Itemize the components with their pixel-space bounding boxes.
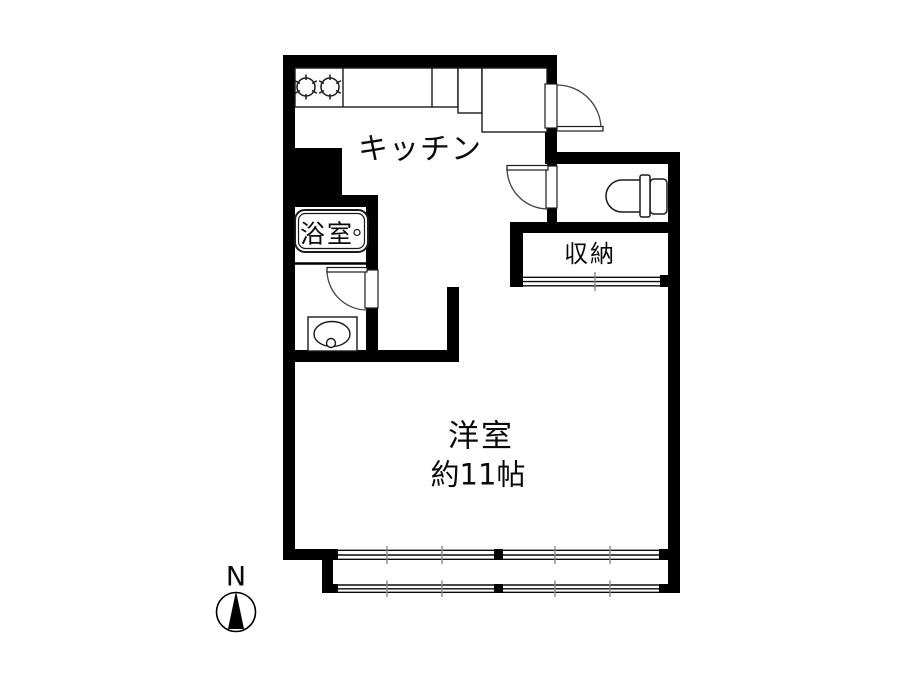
bathtub-drain-icon [354, 230, 360, 236]
wall-top [283, 55, 557, 68]
wall-washroom-bottom [283, 350, 459, 362]
toilet-door-opening [546, 166, 557, 208]
wall-right-outer [668, 152, 680, 593]
wall-toilet-top [545, 152, 680, 164]
wall-washroom-bar [283, 195, 378, 207]
wall-left [283, 55, 295, 560]
wall-stub [447, 287, 459, 362]
compass-north-label: N [226, 564, 246, 591]
toilet-swing-door-icon [507, 166, 557, 210]
entrance-door-leaf [557, 127, 603, 132]
storage-label: 収納 [564, 242, 616, 266]
toilet-tank-icon [650, 179, 667, 214]
washroom-door-opening [365, 270, 378, 308]
wall-closet-left [510, 222, 523, 287]
washbasin-icon [308, 317, 357, 351]
floor-plan-canvas: キッチン 浴室 収納 洋室 約11帖 N [0, 0, 900, 675]
toilet-seat-hinge-icon [640, 175, 650, 217]
refrigerator-space-icon [482, 68, 547, 132]
wall-closet-top [510, 222, 680, 233]
floor-plan-drawing [0, 0, 900, 675]
washroom-door-arc [327, 270, 367, 310]
washroom-swing-door-icon [327, 268, 378, 311]
toilet-icon [606, 175, 667, 217]
entrance-door-opening [545, 84, 557, 128]
north-compass-icon [217, 591, 256, 632]
kitchen-label: キッチン [358, 135, 482, 165]
washroom-door-leaf [327, 268, 367, 273]
toilet-door-arc [507, 168, 548, 209]
closet-sliding-door-icon [523, 272, 670, 291]
kitchen-counter-icon [295, 68, 547, 132]
bathroom-label: 浴室 [300, 222, 354, 247]
wall-washroom-right-lower [366, 308, 378, 354]
toilet-door-leaf [507, 166, 548, 171]
main-room-size-label: 約11帖 [431, 461, 526, 490]
entrance-swing-door-icon [545, 84, 603, 131]
main-room-label: 洋室 [448, 422, 514, 453]
entrance-door-arc [557, 85, 601, 129]
kitchen-sink-unit-icon [458, 68, 482, 113]
